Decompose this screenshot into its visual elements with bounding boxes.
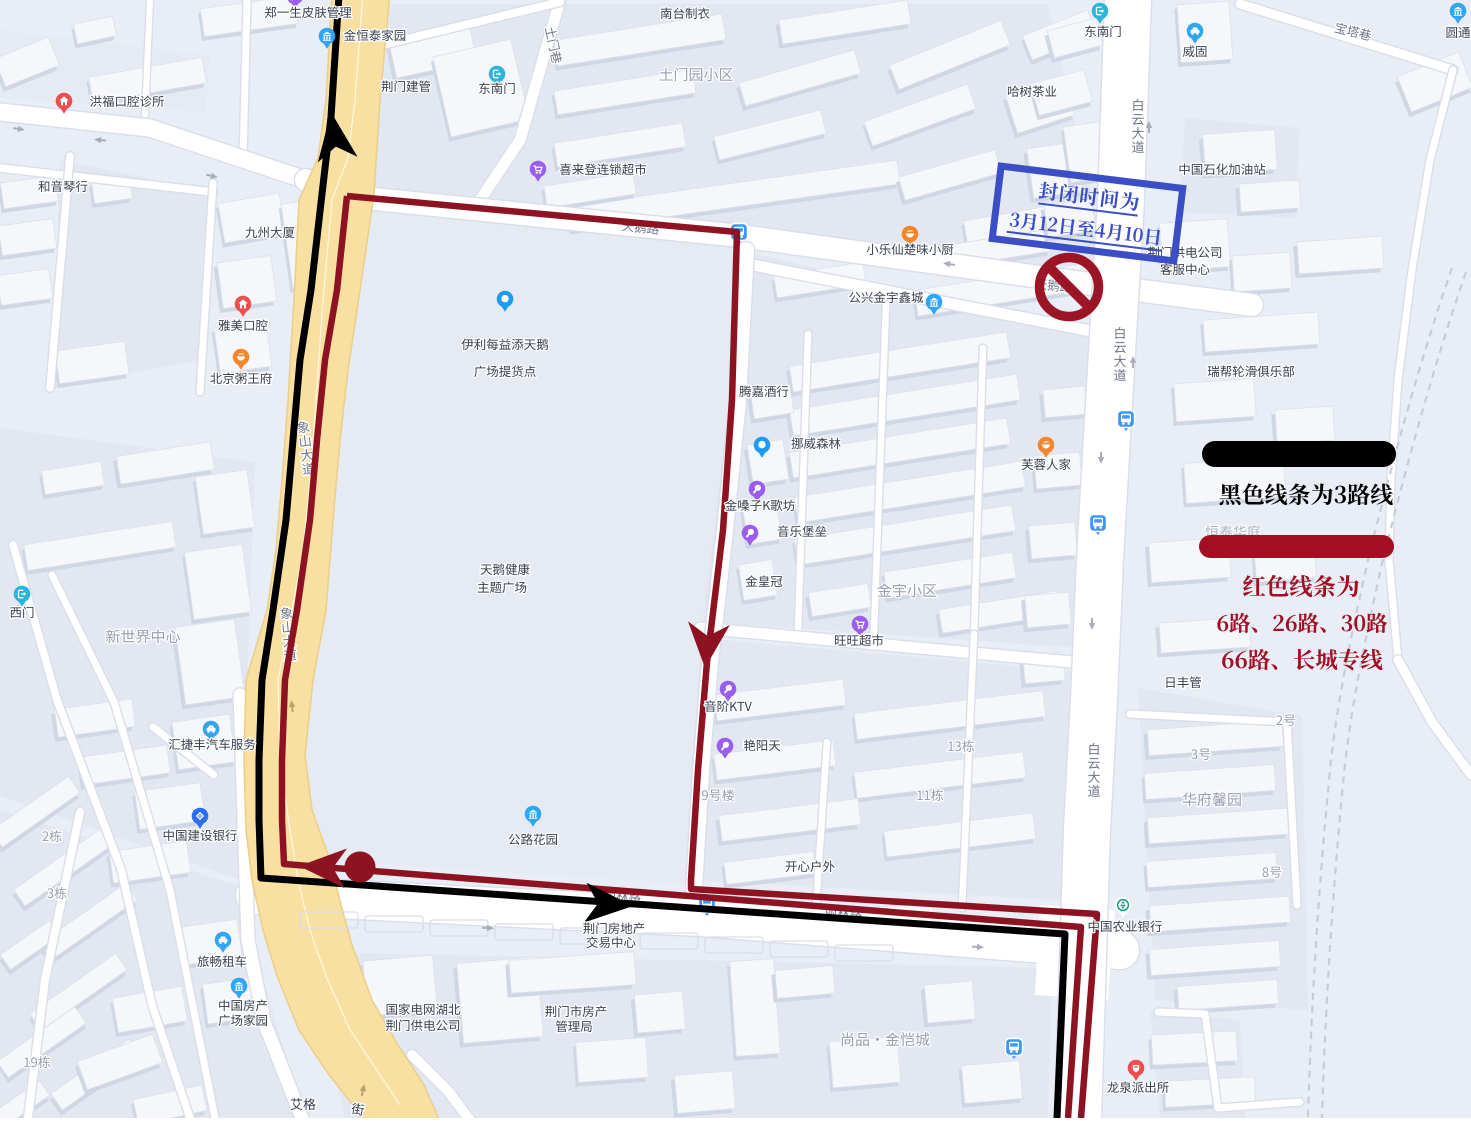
svg-text:中国建设银行: 中国建设银行 (162, 825, 237, 844)
svg-text:3栋: 3栋 (47, 883, 67, 902)
svg-text:荆门供电公司: 荆门供电公司 (385, 1015, 460, 1034)
svg-text:广场家园: 广场家园 (218, 1010, 268, 1029)
svg-text:音乐堡垒: 音乐堡垒 (777, 521, 827, 540)
svg-text:尚品·金恺城: 尚品·金恺城 (840, 1029, 930, 1050)
svg-text:广场提货点: 广场提货点 (474, 361, 537, 380)
svg-text:13栋: 13栋 (947, 736, 974, 755)
svg-text:公兴金宇鑫城: 公兴金宇鑫城 (848, 287, 924, 306)
svg-text:挪威森林: 挪威森林 (791, 433, 842, 452)
svg-text:金皇冠: 金皇冠 (745, 571, 783, 590)
svg-text:19栋: 19栋 (23, 1052, 50, 1071)
svg-text:伊利每益添天鹅: 伊利每益添天鹅 (461, 334, 549, 353)
svg-text:西门: 西门 (9, 602, 34, 621)
svg-text:道: 道 (1113, 365, 1126, 384)
svg-text:中国农业银行: 中国农业银行 (1087, 916, 1162, 935)
svg-text:郑一生皮肤管理: 郑一生皮肤管理 (264, 2, 352, 21)
svg-text:6路、26路、30路: 6路、26路、30路 (1216, 607, 1388, 638)
svg-text:东南门: 东南门 (1084, 21, 1122, 40)
svg-text:11栋: 11栋 (916, 785, 943, 804)
svg-text:洪福口腔诊所: 洪福口腔诊所 (89, 91, 164, 110)
svg-text:红色线条为: 红色线条为 (1242, 568, 1360, 602)
svg-text:音阶KTV: 音阶KTV (704, 696, 753, 715)
svg-text:金恒泰家园: 金恒泰家园 (344, 25, 407, 44)
svg-text:龙泉派出所: 龙泉派出所 (1107, 1077, 1170, 1096)
svg-text:瑞帮轮滑俱乐部: 瑞帮轮滑俱乐部 (1207, 361, 1295, 380)
svg-text:腾嘉酒行: 腾嘉酒行 (739, 381, 789, 400)
svg-text:2号: 2号 (1276, 710, 1296, 729)
svg-text:南台制衣: 南台制衣 (660, 3, 711, 22)
svg-text:九州大厦: 九州大厦 (245, 222, 295, 241)
svg-text:主题广场: 主题广场 (477, 577, 527, 596)
svg-text:9号楼: 9号楼 (701, 785, 734, 804)
svg-text:道: 道 (1087, 781, 1100, 800)
svg-text:雅美口腔: 雅美口腔 (218, 315, 268, 334)
svg-text:和音琴行: 和音琴行 (38, 176, 88, 195)
svg-text:东南门: 东南门 (478, 78, 516, 97)
svg-text:芙蓉人家: 芙蓉人家 (1021, 454, 1072, 473)
svg-text:2栋: 2栋 (42, 826, 62, 845)
svg-text:66路、长城专线: 66路、长城专线 (1221, 643, 1383, 675)
svg-text:交易中心: 交易中心 (586, 932, 637, 951)
svg-text:金宇小区: 金宇小区 (877, 580, 937, 601)
svg-text:威固: 威固 (1182, 41, 1207, 60)
svg-text:华府馨园: 华府馨园 (1182, 789, 1242, 810)
svg-text:小乐仙楚味小厨: 小乐仙楚味小厨 (866, 239, 954, 258)
svg-text:中国石化加油站: 中国石化加油站 (1178, 159, 1266, 178)
svg-text:天鹅健康: 天鹅健康 (480, 559, 531, 578)
svg-text:黑色线条为3路线: 黑色线条为3路线 (1219, 477, 1394, 510)
svg-text:喜来登连锁超市: 喜来登连锁超市 (559, 159, 647, 178)
svg-text:日丰管: 日丰管 (1164, 672, 1202, 691)
svg-text:开心户外: 开心户外 (785, 856, 836, 875)
svg-text:哈树茶业: 哈树茶业 (1007, 81, 1057, 100)
svg-text:艾格: 艾格 (290, 1094, 316, 1113)
svg-text:北京粥王府: 北京粥王府 (210, 368, 273, 387)
svg-text:道: 道 (1131, 137, 1144, 156)
svg-text:公路花园: 公路花园 (508, 829, 558, 848)
svg-text:圆通: 圆通 (1445, 22, 1471, 41)
svg-text:汇捷丰汽车服务: 汇捷丰汽车服务 (168, 734, 256, 753)
svg-text:8号: 8号 (1262, 862, 1282, 881)
svg-text:土门园小区: 土门园小区 (658, 64, 733, 85)
svg-text:旺旺超市: 旺旺超市 (834, 630, 884, 649)
svg-text:荆门建管: 荆门建管 (381, 76, 431, 95)
svg-text:管理局: 管理局 (555, 1016, 593, 1035)
svg-text:新世界中心: 新世界中心 (105, 626, 180, 647)
svg-text:金嗓子K歌坊: 金嗓子K歌坊 (725, 495, 796, 514)
svg-text:3号: 3号 (1191, 744, 1211, 763)
svg-text:旅畅租车: 旅畅租车 (197, 951, 247, 970)
svg-text:艳阳天: 艳阳天 (743, 735, 781, 754)
